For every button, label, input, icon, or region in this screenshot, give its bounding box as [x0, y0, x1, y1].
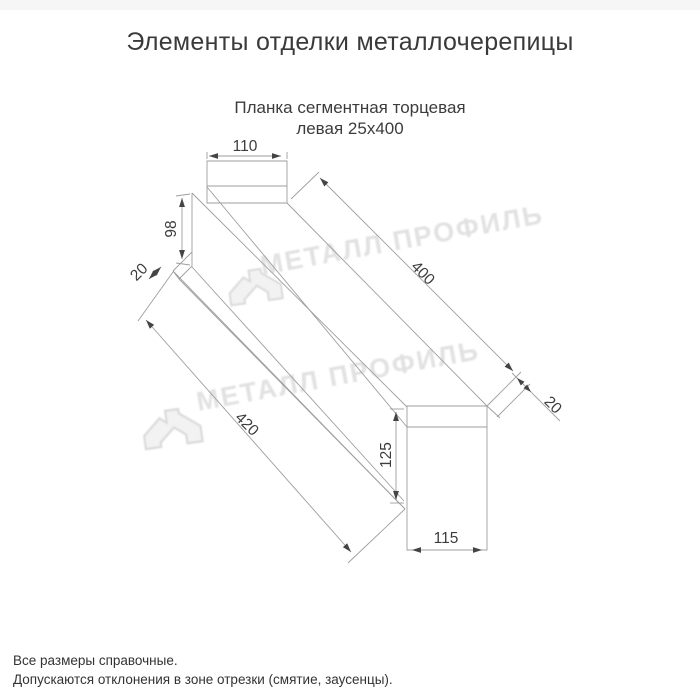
watermark-text: МЕТАЛЛ ПРОФИЛЬ — [258, 199, 546, 281]
dim-far-hem: 20 — [127, 260, 151, 284]
dim-far-height: 98 — [163, 220, 180, 237]
dim-near-height: 125 — [378, 442, 395, 468]
dim-top-edge-length: 400 — [407, 258, 438, 289]
footnote-line1: Все размеры справочные. — [13, 651, 613, 670]
dim-bottom-edge-length: 420 — [231, 409, 262, 440]
brand-logo-icon — [141, 406, 203, 449]
footnote-line2: Допускаются отклонения в зоне отрезки (с… — [13, 670, 613, 689]
footnotes: Все размеры справочные. Допускаются откл… — [13, 651, 613, 689]
dim-near-hem: 20 — [541, 393, 565, 417]
dim-near-width: 115 — [434, 530, 459, 547]
watermark-layer: МЕТАЛЛ ПРОФИЛЬ МЕТАЛЛ ПРОФИЛЬ — [141, 199, 546, 449]
dim-top-width: 110 — [233, 138, 258, 155]
watermark-text: МЕТАЛЛ ПРОФИЛЬ — [194, 335, 482, 417]
dimension-labels: 110 98 20 400 20 420 125 115 — [127, 138, 565, 547]
technical-drawing: МЕТАЛЛ ПРОФИЛЬ МЕТАЛЛ ПРОФИЛЬ — [0, 0, 700, 700]
